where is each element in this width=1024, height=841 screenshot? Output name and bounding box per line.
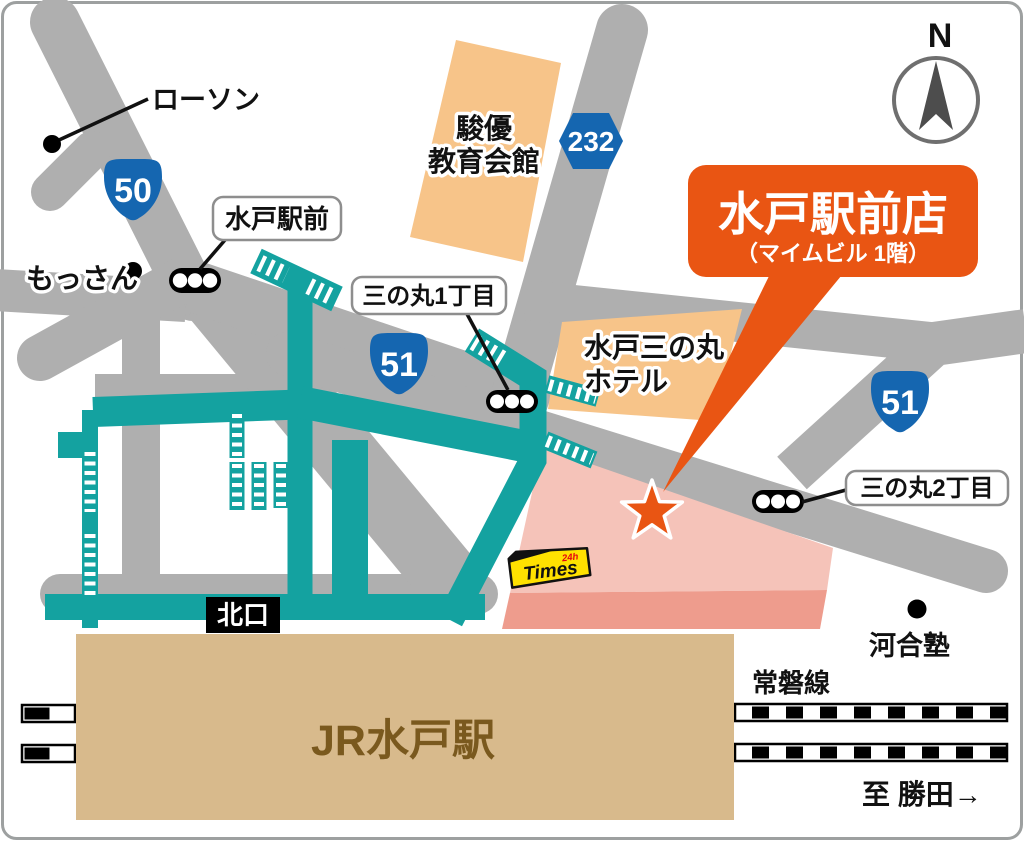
map-canvas: 50 51 51 232 水戸駅前 三の丸1丁目 三の丸2丁目 北口 水戸駅前店… bbox=[0, 0, 1024, 841]
kawaijuku-label: 河合塾 bbox=[869, 630, 950, 661]
traffic-light-sannomaru2 bbox=[752, 490, 804, 513]
lamp bbox=[786, 495, 800, 509]
lamp bbox=[188, 273, 202, 287]
rail-left-2-cell bbox=[25, 748, 50, 760]
lamp bbox=[203, 273, 217, 287]
route-51-number-west: 51 bbox=[380, 346, 418, 384]
lamp bbox=[505, 395, 519, 409]
route-51-number-east: 51 bbox=[881, 384, 919, 422]
hotel-label-line1: 水戸三の丸 bbox=[584, 332, 724, 363]
lamp bbox=[771, 495, 785, 509]
building-maimbuilding-side bbox=[502, 590, 827, 629]
lamp bbox=[173, 273, 187, 287]
joban-line-label: 常磐線 bbox=[752, 668, 830, 698]
compass-n-label: N bbox=[928, 17, 953, 55]
mossan-label: もっさん bbox=[26, 263, 138, 294]
route-50-number: 50 bbox=[114, 172, 152, 210]
lawson-dot bbox=[43, 135, 61, 153]
lawson-label: ローソン bbox=[152, 85, 260, 115]
traffic-light-mito-ekimae bbox=[169, 268, 221, 293]
to-katsuta-label: 至 勝田→ bbox=[862, 779, 982, 810]
shunyu-label-line1: 駿優 bbox=[456, 113, 513, 144]
sannomaru1-label: 三の丸1丁目 bbox=[362, 283, 495, 310]
store-floor-note: （マイムビル 1階） bbox=[736, 241, 930, 266]
lamp bbox=[756, 495, 770, 509]
north-exit-label: 北口 bbox=[217, 600, 269, 630]
sannomaru2-label: 三の丸2丁目 bbox=[860, 475, 993, 502]
lamp bbox=[520, 395, 534, 409]
shunyu-label-line2: 教育会館 bbox=[428, 145, 540, 177]
kawaijuku-dot bbox=[908, 600, 927, 619]
access-map: 50 51 51 232 水戸駅前 三の丸1丁目 三の丸2丁目 北口 水戸駅前店… bbox=[0, 0, 1024, 841]
hotel-label-line2: ホテル bbox=[584, 366, 668, 397]
store-name: 水戸駅前店 bbox=[718, 188, 948, 240]
traffic-light-sannomaru1 bbox=[486, 390, 538, 413]
lamp bbox=[490, 395, 504, 409]
jr-mito-station-label: JR水戸駅 bbox=[311, 717, 495, 765]
rail-left-1-cell bbox=[25, 708, 50, 720]
mito-ekimae-label: 水戸駅前 bbox=[225, 204, 329, 234]
deck-upper-horizontal bbox=[93, 404, 314, 412]
route-232-number: 232 bbox=[568, 126, 615, 157]
